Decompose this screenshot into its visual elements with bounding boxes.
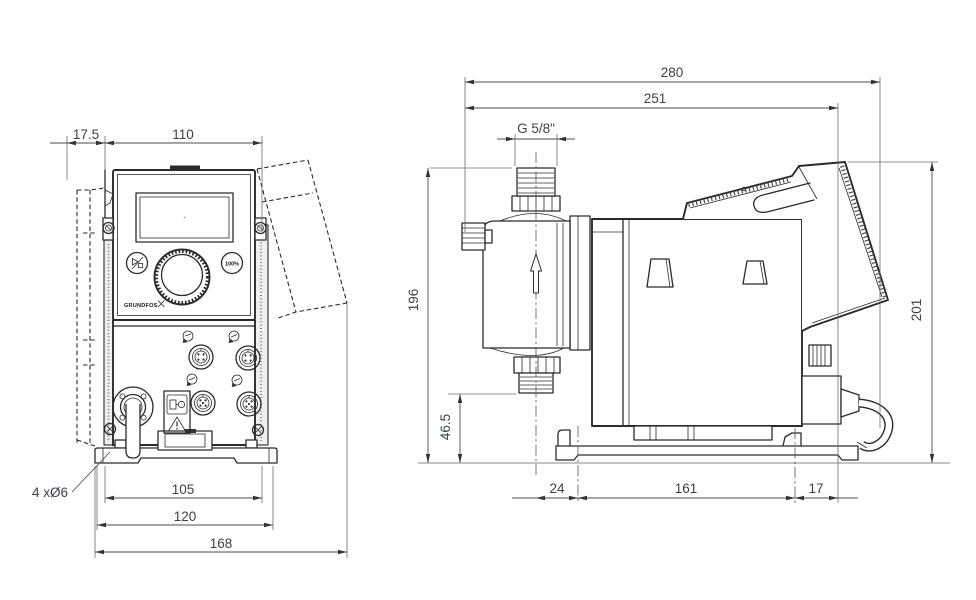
din-rail-clip (158, 429, 212, 450)
rear-connections (802, 345, 889, 448)
control-panel: 100% GRUNDFOS (113, 166, 255, 321)
capacity-button-label: 100% (225, 261, 239, 267)
head-flange-plate (570, 216, 590, 350)
dim-overall-width-label: 168 (210, 536, 233, 551)
panel-top-tab (170, 166, 200, 172)
signal-connector-bottom-right (237, 392, 261, 416)
dim-base-hole-pitch-label: 161 (675, 481, 698, 496)
mounting-ear-right (255, 218, 266, 240)
rear-threaded-plug (809, 345, 831, 366)
pump-housing (592, 219, 802, 440)
connection-thread-label: G 5/8" (517, 121, 555, 136)
dim-depth-to-cube-label: 251 (644, 91, 667, 106)
cable-gland-side (802, 376, 841, 424)
dim-overall-height-label: 201 (909, 299, 924, 322)
dim-base-rear-offset-label: 17 (808, 481, 823, 496)
mounting-holes-label: 4 xØ6 (32, 485, 68, 500)
bracket-hook (105, 190, 113, 206)
control-cube-hidden-outline (257, 160, 347, 318)
mounting-ear-left (103, 218, 114, 240)
dim-panel-width-label: 110 (172, 127, 194, 142)
technical-drawing-canvas: 100% GRUNDFOS (0, 0, 976, 600)
dim-hole-pitch-label: 105 (172, 482, 195, 497)
signal-connector-bottom-left (191, 391, 215, 415)
dim-base-front-offset-label: 24 (549, 481, 565, 496)
dim-suction-height-label: 46.5 (438, 414, 453, 440)
pump-head (462, 168, 570, 393)
side-view: 280 251 G 5/8" 196 46.5 201 (406, 65, 950, 503)
base-rail (634, 426, 772, 440)
front-view: 100% GRUNDFOS (32, 127, 347, 558)
suction-connection (514, 357, 560, 393)
dim-offset-top-label: 17.5 (73, 127, 99, 142)
dosing-pump-dimension-drawing: 100% GRUNDFOS (0, 0, 976, 600)
dim-base-width-label: 120 (174, 509, 197, 524)
brand-wordmark: GRUNDFOS (124, 303, 158, 309)
dim-height-to-connection-label: 196 (406, 289, 421, 312)
power-cable-front (126, 404, 140, 458)
dim-overall-depth-label: 280 (661, 65, 684, 80)
